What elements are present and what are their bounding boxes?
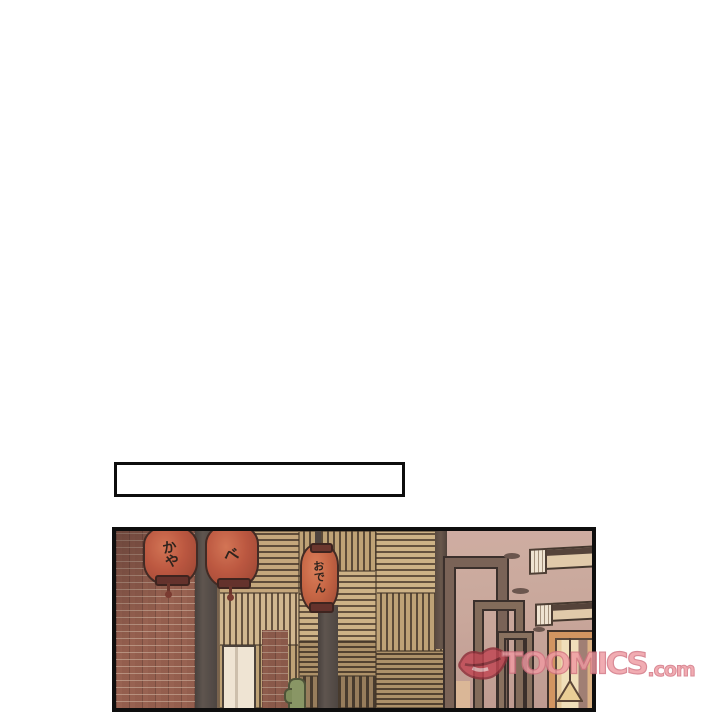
panel-haze-overlay bbox=[116, 531, 592, 708]
narration-box bbox=[114, 462, 405, 497]
comic-page: { "page": {"background": "#ffffff"}, "na… bbox=[0, 0, 720, 700]
narration-text bbox=[117, 465, 402, 477]
comic-panel: か や べ お で ん bbox=[112, 527, 596, 712]
watermark-domain: .com bbox=[647, 659, 694, 681]
